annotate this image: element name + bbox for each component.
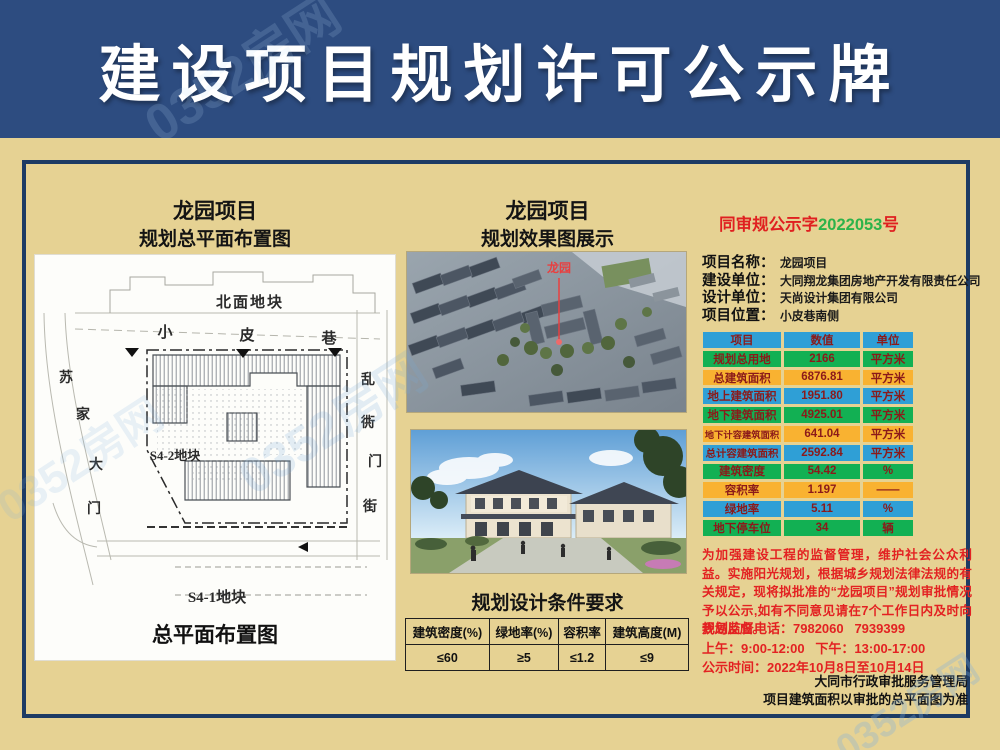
conditions-value-cell: ≥5 xyxy=(489,645,558,671)
conditions-value-cell: ≤1.2 xyxy=(559,645,606,671)
metrics-cell: 平方米 xyxy=(863,407,913,423)
agency-signature: 大同市行政审批服务管理局 项目建筑面积以审批的总平面图为准 xyxy=(700,673,968,709)
doc-no-suffix: 号 xyxy=(882,216,899,234)
metrics-cell: 容积率 xyxy=(703,482,781,498)
metrics-table: 项目 数值 单位 规划总用地 2166 平方米 总建筑面积 6876.81 平方… xyxy=(703,332,913,536)
metrics-cell: % xyxy=(863,464,913,480)
metrics-cell: 平方米 xyxy=(863,370,913,386)
info-row-name: 项目名称： 龙园项目 xyxy=(702,251,974,269)
metrics-cell: 平方米 xyxy=(863,351,913,367)
aerial-render-image: 龙园 xyxy=(407,252,686,412)
conditions-heading: 规划设计条件要求 xyxy=(405,588,690,615)
metrics-cell: 1951.80 xyxy=(784,388,860,404)
site-plan-drawing: 北面地块 小 皮 巷 苏 家 大 门 乱 衖 门 街 S4-2地块 S4-1地块 xyxy=(35,255,395,607)
conditions-header-cell: 建筑高度(M) xyxy=(606,619,689,645)
metrics-cell: 54.42 xyxy=(784,464,860,480)
notice-board: 建设项目规划许可公示牌 龙园项目 规划总平面布置图 xyxy=(0,0,1000,750)
metrics-cell: 辆 xyxy=(863,520,913,536)
north-parcel-label: 北面地块 xyxy=(216,293,284,311)
doc-no-prefix: 同审规公示字 xyxy=(719,216,818,234)
street-render-image xyxy=(411,430,686,573)
metrics-cell: 641.04 xyxy=(784,426,860,442)
info-row-designer: 设计单位： 天尚设计集团有限公司 xyxy=(702,286,974,304)
metrics-cell: 绿地率 xyxy=(703,501,781,517)
conditions-value-cell: ≤9 xyxy=(606,645,689,671)
middle-column-subtitle: 规划效果图展示 xyxy=(405,224,690,251)
metrics-cell: 地下计容建筑面积 xyxy=(703,426,781,442)
site-plan-panel: 北面地块 小 皮 巷 苏 家 大 门 乱 衖 门 街 S4-2地块 S4-1地块… xyxy=(35,255,395,660)
metrics-cell: 总计容建筑面积 xyxy=(703,445,781,461)
conditions-header-cell: 建筑密度(%) xyxy=(406,619,490,645)
svg-text:门: 门 xyxy=(87,500,101,517)
metrics-cell: —— xyxy=(863,482,913,498)
street-right-label: 乱 衖 门 街 xyxy=(360,371,382,515)
document-number: 同审规公示字2022053号 xyxy=(700,211,918,235)
svg-text:衖: 衖 xyxy=(360,414,375,431)
metrics-header: 项目 xyxy=(703,332,781,348)
banner: 建设项目规划许可公示牌 xyxy=(0,0,1000,138)
middle-column-title: 龙园项目 xyxy=(405,195,690,225)
metrics-header: 单位 xyxy=(863,332,913,348)
metrics-cell: 地下建筑面积 xyxy=(703,407,781,423)
metrics-cell: 5.11 xyxy=(784,501,860,517)
conditions-header-cell: 绿地率(%) xyxy=(489,619,558,645)
office-hours-line: 上午：9:00-12:00 下午：13:00-17:00 xyxy=(702,638,925,657)
metrics-cell: 建筑密度 xyxy=(703,464,781,480)
metrics-cell: 1.197 xyxy=(784,482,860,498)
svg-text:苏: 苏 xyxy=(59,369,73,386)
parcel-s41-label: S4-1地块 xyxy=(188,588,247,606)
agency-note: 项目建筑面积以审批的总平面图为准 xyxy=(700,691,968,709)
left-column-title: 龙园项目 xyxy=(35,195,395,225)
doc-no-number: 2022053 xyxy=(818,216,882,234)
agency-name: 大同市行政审批服务管理局 xyxy=(700,673,968,691)
metrics-cell: 4925.01 xyxy=(784,407,860,423)
site-plan-caption: 总平面布置图 xyxy=(35,619,395,649)
metrics-cell: 总建筑面积 xyxy=(703,370,781,386)
parcel-s42-label: S4-2地块 xyxy=(150,448,202,463)
street-top-char-3: 巷 xyxy=(320,329,337,347)
left-column-subtitle: 规划总平面布置图 xyxy=(35,224,395,251)
metrics-cell: 地上建筑面积 xyxy=(703,388,781,404)
project-info: 项目名称： 龙园项目 建设单位： 大同翔龙集团房地产开发有限责任公司 设计单位：… xyxy=(702,251,974,321)
street-top-char-1: 小 xyxy=(157,324,172,341)
svg-text:乱: 乱 xyxy=(361,371,375,388)
metrics-cell: 平方米 xyxy=(863,388,913,404)
street-left-label: 苏 家 大 门 xyxy=(59,369,103,517)
svg-text:家: 家 xyxy=(76,406,91,423)
metrics-cell: 2166 xyxy=(784,351,860,367)
conditions-header-cell: 容积率 xyxy=(559,619,606,645)
street-top-char-2: 皮 xyxy=(239,326,254,344)
conditions-table: 建筑密度(%) 绿地率(%) 容积率 建筑高度(M) ≤60 ≥5 ≤1.2 ≤… xyxy=(405,618,689,671)
supervision-phone-line: 规划监督电话：7982060 7939399 xyxy=(702,618,905,637)
info-row-location: 项目位置： 小皮巷南侧 xyxy=(702,304,974,322)
render-site-label: 龙园 xyxy=(547,260,571,275)
metrics-cell: 2592.84 xyxy=(784,445,860,461)
metrics-cell: 平方米 xyxy=(863,426,913,442)
metrics-cell: 地下停车位 xyxy=(703,520,781,536)
metrics-cell: % xyxy=(863,501,913,517)
metrics-cell: 平方米 xyxy=(863,445,913,461)
conditions-value-row: ≤60 ≥5 ≤1.2 ≤9 xyxy=(406,645,689,671)
conditions-header-row: 建筑密度(%) 绿地率(%) 容积率 建筑高度(M) xyxy=(406,619,689,645)
metrics-cell: 规划总用地 xyxy=(703,351,781,367)
svg-text:门: 门 xyxy=(368,453,382,470)
metrics-cell: 6876.81 xyxy=(784,370,860,386)
metrics-header: 数值 xyxy=(784,332,860,348)
banner-title: 建设项目规划许可公示牌 xyxy=(98,24,901,114)
conditions-value-cell: ≤60 xyxy=(406,645,490,671)
info-row-builder: 建设单位： 大同翔龙集团房地产开发有限责任公司 xyxy=(702,269,974,287)
metrics-cell: 34 xyxy=(784,520,860,536)
svg-text:大: 大 xyxy=(89,456,103,473)
svg-text:街: 街 xyxy=(362,498,377,515)
